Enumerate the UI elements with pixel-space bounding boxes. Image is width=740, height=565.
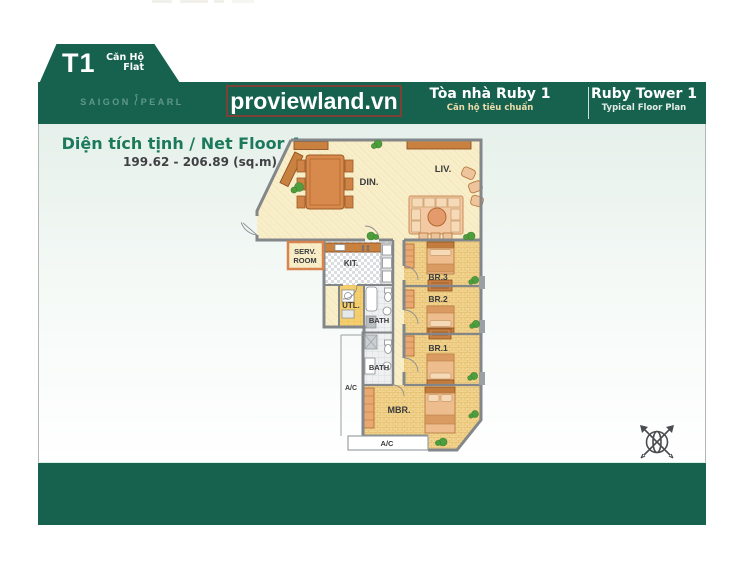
label-ac-side: A/C — [345, 385, 357, 392]
compass-rose-icon — [635, 420, 679, 464]
footer-bar — [38, 462, 706, 525]
building-sub-en: Typical Floor Plan — [574, 102, 714, 115]
room-label-br3: BR.3 — [428, 272, 448, 282]
bed-br1 — [427, 354, 454, 385]
logo-word-2: PEARL — [141, 97, 184, 107]
unit-type-tab: T1 Căn Hộ Flat — [38, 44, 180, 83]
room-label-bath-lower: BATH — [369, 363, 389, 372]
building-title-vi: Tòa nhà Ruby 1 Căn hộ tiêu chuẩn — [410, 88, 570, 115]
building-name-vi: Tòa nhà Ruby 1 — [410, 88, 570, 101]
room-label-utl: UTL. — [342, 301, 360, 310]
tv-console — [407, 141, 471, 149]
saigon-pearl-logo: SAIGONPEARL — [54, 93, 210, 107]
building-sub-vi: Căn hộ tiêu chuẩn — [410, 102, 570, 115]
building-title-en: Ruby Tower 1 Typical Floor Plan — [574, 88, 714, 115]
top-crop-remnant — [232, 0, 254, 3]
room-label-bath-upper: BATH — [369, 316, 389, 325]
room-label-kit: KIT. — [344, 259, 358, 268]
bed-br3 — [427, 242, 454, 274]
unit-type-en: Flat — [74, 63, 144, 73]
room-label-serv-2: ROOM — [293, 256, 316, 265]
floor-plan-flyer: T1 Căn Hộ Flat SAIGONPEARL proviewland.v… — [0, 0, 740, 565]
watermark: proviewland.vn — [226, 85, 402, 117]
bed-mbr — [425, 387, 455, 433]
header-band: SAIGONPEARL proviewland.vn Tòa nhà Ruby … — [38, 82, 706, 124]
label-ac-bottom: A/C — [381, 439, 395, 448]
dining-table — [297, 155, 353, 209]
floor-plan-drawing: DIN. LIV. SERV. ROOM KIT. UTL. BATH BATH… — [241, 130, 497, 465]
building-name-en: Ruby Tower 1 — [574, 88, 714, 101]
top-crop-remnant — [214, 0, 224, 3]
room-label-mbr: MBR. — [388, 405, 411, 415]
logo-word-1: SAIGON — [80, 97, 131, 107]
sofa-set — [409, 196, 463, 240]
room-label-br1: BR.1 — [428, 343, 448, 353]
room-label-din: DIN. — [360, 177, 379, 188]
room-label-liv: LIV. — [435, 164, 452, 175]
pearl-swirl-icon — [131, 93, 141, 106]
unit-type-label: Căn Hộ Flat — [74, 53, 144, 73]
room-label-serv-1: SERV. — [294, 247, 316, 256]
content-area: Diện tích tịnh / Net Floor Area: 199.62 … — [38, 124, 706, 462]
room-label-br2: BR.2 — [428, 294, 448, 304]
top-crop-remnant — [152, 0, 172, 3]
top-crop-remnant — [180, 0, 208, 3]
